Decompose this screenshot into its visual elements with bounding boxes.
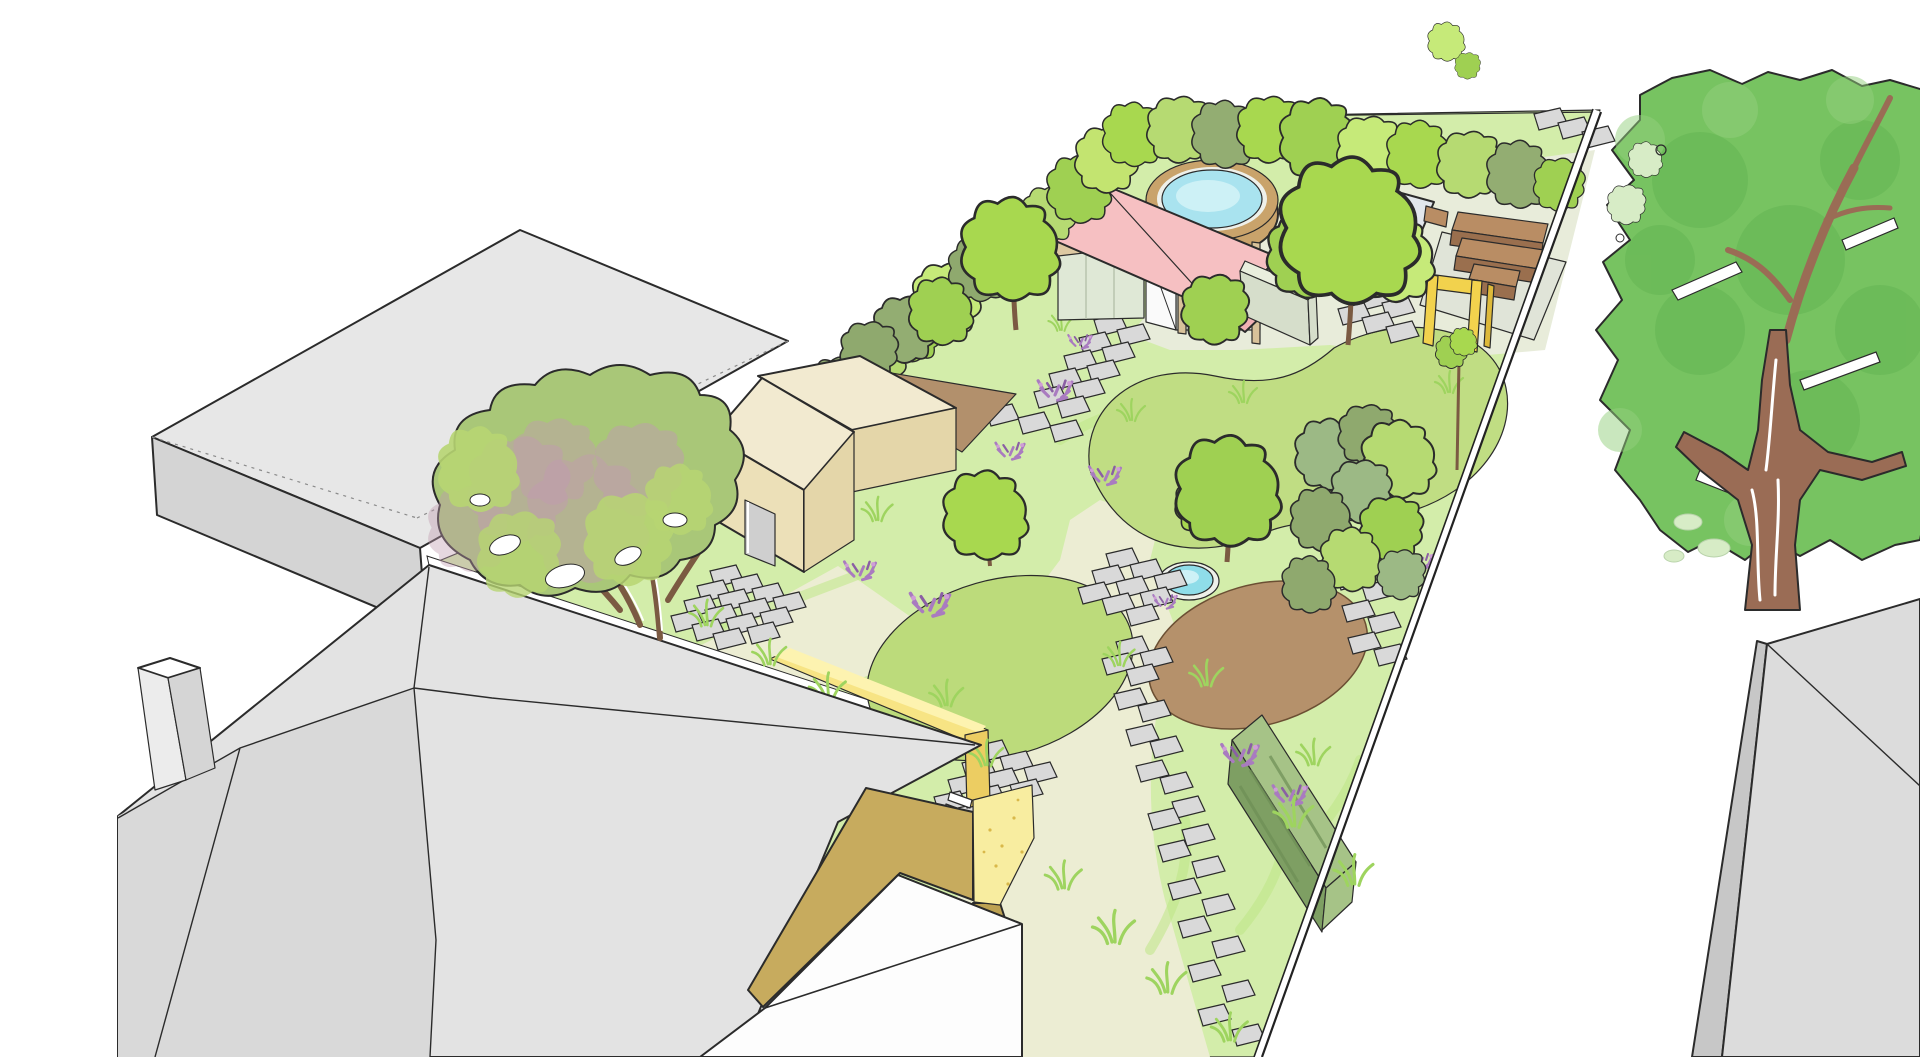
garden-render-canvas — [0, 0, 1920, 1057]
3d-viewport[interactable] — [0, 0, 1920, 1057]
